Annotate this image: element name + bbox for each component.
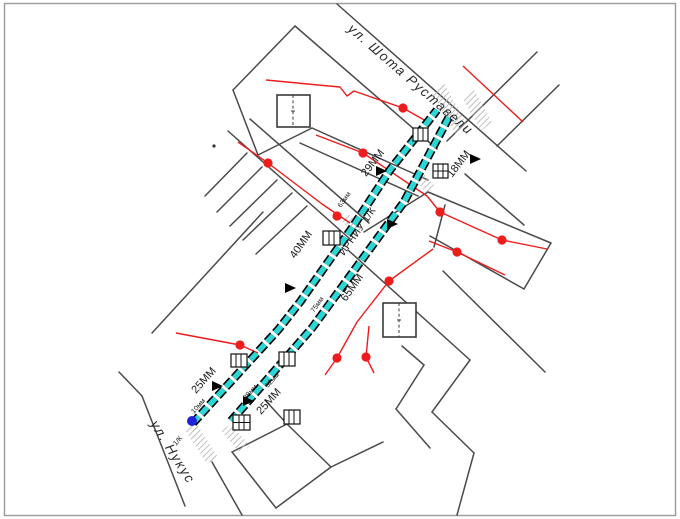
utility-map-canvas: ул. Шота Руставели ул. Нукус 29ММ 18ММ 4… [0,0,680,519]
pipeline-start-blue-dot [187,416,197,426]
chamber-icon [284,410,300,424]
building-footprint [383,303,416,337]
network-node-red-dot [435,207,444,216]
network-node-red-dot [398,103,407,112]
network-node-red-dot [452,247,461,256]
plan-page: ул. Шота Руставели ул. Нукус 29ММ 18ММ 4… [0,0,680,519]
survey-point-dot [212,144,215,147]
chamber-icon [231,354,247,367]
chamber-icon [323,231,340,245]
network-node-red-dot [358,148,367,157]
chamber-icon [233,415,250,430]
network-node-red-dot [361,352,370,361]
network-node-red-dot [235,340,244,349]
page-border [5,4,676,516]
chamber-icon [413,128,428,141]
network-node-red-dot [497,235,506,244]
building-footprint [277,95,310,127]
network-node-red-dot [263,158,272,167]
network-node-red-dot [332,353,341,362]
network-node-red-dot [384,276,393,285]
chamber-icon [279,352,295,366]
network-node-red-dot [332,211,341,220]
